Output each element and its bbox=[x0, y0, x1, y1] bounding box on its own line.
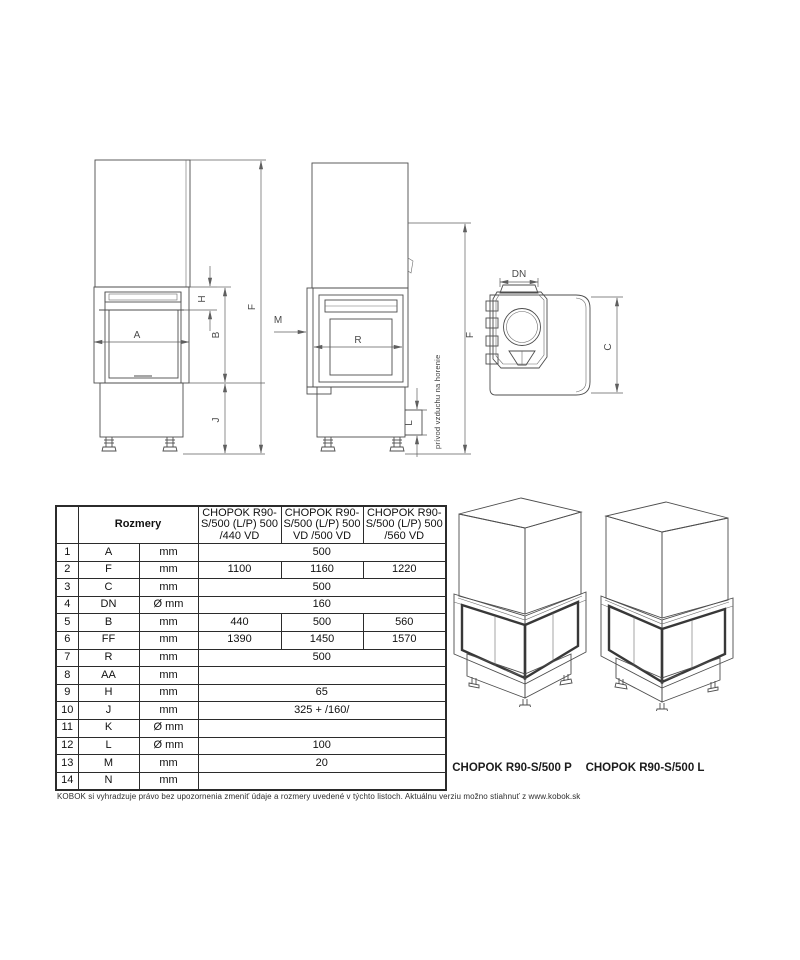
footer-disclaimer: KOBOK si vyhradzuje právo bez upozorneni… bbox=[57, 792, 657, 801]
row-value: 500 bbox=[198, 544, 446, 562]
table-row: 1Amm 500 bbox=[56, 544, 446, 562]
row-num: 1 bbox=[56, 544, 78, 562]
row-unit: mm bbox=[139, 772, 198, 790]
row-dim: H bbox=[78, 684, 139, 702]
row-unit: mm bbox=[139, 684, 198, 702]
dim-label-F-side: F bbox=[465, 332, 476, 338]
row-dim: FF bbox=[78, 631, 139, 649]
top-view-dimensions: DN C bbox=[500, 269, 623, 393]
row-unit: Ø mm bbox=[139, 596, 198, 614]
dim-label-L: L bbox=[404, 420, 415, 426]
row-unit: mm bbox=[139, 702, 198, 720]
row-num: 13 bbox=[56, 755, 78, 773]
row-value: 500 bbox=[198, 579, 446, 597]
row-num: 3 bbox=[56, 579, 78, 597]
table-row: 7Rmm 500 bbox=[56, 649, 446, 667]
front-view-dimensions: A H B J F bbox=[94, 160, 266, 454]
table-header-row: Rozmery CHOPOK R90-S/500 (L/P) 500 /440 … bbox=[56, 506, 446, 544]
row-value: 325 + /160/ bbox=[198, 702, 446, 720]
row-unit: mm bbox=[139, 561, 198, 579]
row-dim: L bbox=[78, 737, 139, 755]
table-row: 5Bmm 440500560 bbox=[56, 614, 446, 632]
row-num: 14 bbox=[56, 772, 78, 790]
row-dim: AA bbox=[78, 667, 139, 685]
dim-label-R: R bbox=[354, 335, 361, 346]
row-num: 7 bbox=[56, 649, 78, 667]
row-unit: Ø mm bbox=[139, 719, 198, 737]
air-supply-note: prívod vzduchu na horenie bbox=[433, 355, 442, 450]
row-unit: mm bbox=[139, 631, 198, 649]
table-row: 14Nmm bbox=[56, 772, 446, 790]
table-row: 4DNØ mm 160 bbox=[56, 596, 446, 614]
table-row: 13Mmm 20 bbox=[56, 755, 446, 773]
table-row: 10Jmm 325 + /160/ bbox=[56, 702, 446, 720]
dim-label-DN: DN bbox=[512, 269, 526, 280]
row-dim: B bbox=[78, 614, 139, 632]
row-value: 1220 bbox=[363, 561, 446, 579]
dim-label-A: A bbox=[134, 330, 141, 341]
side-view-outline bbox=[307, 163, 422, 451]
row-num: 10 bbox=[56, 702, 78, 720]
row-num: 11 bbox=[56, 719, 78, 737]
row-unit: mm bbox=[139, 614, 198, 632]
row-dim: K bbox=[78, 719, 139, 737]
row-unit: mm bbox=[139, 579, 198, 597]
table-row: 3Cmm 500 bbox=[56, 579, 446, 597]
header-num-cell bbox=[56, 506, 78, 544]
row-value: 1450 bbox=[281, 631, 363, 649]
table-row: 6FFmm 139014501570 bbox=[56, 631, 446, 649]
front-right-foot bbox=[163, 437, 177, 451]
table-row: 11KØ mm bbox=[56, 719, 446, 737]
dim-label-J: J bbox=[211, 418, 222, 423]
model-caption-L: CHOPOK R90-S/500 L bbox=[570, 762, 720, 774]
perspective-drawing-P bbox=[445, 492, 595, 707]
row-value: 1100 bbox=[198, 561, 281, 579]
row-dim: N bbox=[78, 772, 139, 790]
side-left-foot bbox=[321, 437, 335, 451]
row-value: 440 bbox=[198, 614, 281, 632]
row-num: 9 bbox=[56, 684, 78, 702]
row-value: 65 bbox=[198, 684, 446, 702]
dim-label-C: C bbox=[603, 343, 614, 350]
row-num: 2 bbox=[56, 561, 78, 579]
row-num: 8 bbox=[56, 667, 78, 685]
row-unit: mm bbox=[139, 544, 198, 562]
side-right-foot bbox=[390, 437, 404, 451]
row-num: 5 bbox=[56, 614, 78, 632]
row-value bbox=[198, 667, 446, 685]
front-view-outline bbox=[94, 160, 190, 451]
row-value: 1390 bbox=[198, 631, 281, 649]
dim-label-F: F bbox=[247, 304, 258, 310]
row-value: 100 bbox=[198, 737, 446, 755]
row-value: 500 bbox=[198, 649, 446, 667]
table-row: 9Hmm 65 bbox=[56, 684, 446, 702]
row-value bbox=[198, 772, 446, 790]
row-dim: R bbox=[78, 649, 139, 667]
perspective-drawing-L bbox=[592, 496, 742, 711]
row-num: 6 bbox=[56, 631, 78, 649]
row-dim: J bbox=[78, 702, 139, 720]
model-caption-P: CHOPOK R90-S/500 P bbox=[437, 762, 587, 774]
header-model-1: CHOPOK R90-S/500 (L/P) 500 /440 VD bbox=[198, 506, 281, 544]
datasheet-page: { "page": {"background": "#ffffff", "lin… bbox=[0, 0, 800, 960]
dimensions-table: Rozmery CHOPOK R90-S/500 (L/P) 500 /440 … bbox=[55, 505, 447, 791]
row-dim: A bbox=[78, 544, 139, 562]
dim-label-H: H bbox=[197, 295, 208, 302]
row-unit: mm bbox=[139, 667, 198, 685]
row-value: 1160 bbox=[281, 561, 363, 579]
row-value bbox=[198, 719, 446, 737]
row-value: 160 bbox=[198, 596, 446, 614]
side-view-drawing: M R L prívod vzduchu na horenie F bbox=[270, 155, 485, 465]
table-row: 8AAmm bbox=[56, 667, 446, 685]
dim-label-B: B bbox=[211, 331, 222, 338]
row-unit: mm bbox=[139, 755, 198, 773]
table-row: 2Fmm 110011601220 bbox=[56, 561, 446, 579]
row-num: 12 bbox=[56, 737, 78, 755]
row-dim: DN bbox=[78, 596, 139, 614]
row-unit: Ø mm bbox=[139, 737, 198, 755]
row-dim: F bbox=[78, 561, 139, 579]
side-view-dimensions: M R L prívod vzduchu na horenie F bbox=[274, 223, 476, 457]
top-view-drawing: DN C bbox=[480, 250, 630, 405]
top-view-outline bbox=[486, 285, 590, 395]
row-unit: mm bbox=[139, 649, 198, 667]
front-left-foot bbox=[102, 437, 116, 451]
row-value: 20 bbox=[198, 755, 446, 773]
table-row: 12LØ mm 100 bbox=[56, 737, 446, 755]
row-value: 500 bbox=[281, 614, 363, 632]
row-value: 560 bbox=[363, 614, 446, 632]
row-value: 1570 bbox=[363, 631, 446, 649]
header-model-3: CHOPOK R90-S/500 (L/P) 500 /560 VD bbox=[363, 506, 446, 544]
front-view-drawing: A H B J F bbox=[85, 155, 270, 465]
row-num: 4 bbox=[56, 596, 78, 614]
row-dim: C bbox=[78, 579, 139, 597]
header-model-2: CHOPOK R90-S/500 (L/P) 500 VD /500 VD bbox=[281, 506, 363, 544]
row-dim: M bbox=[78, 755, 139, 773]
dim-label-M: M bbox=[274, 315, 282, 326]
header-rozmery: Rozmery bbox=[78, 506, 198, 544]
